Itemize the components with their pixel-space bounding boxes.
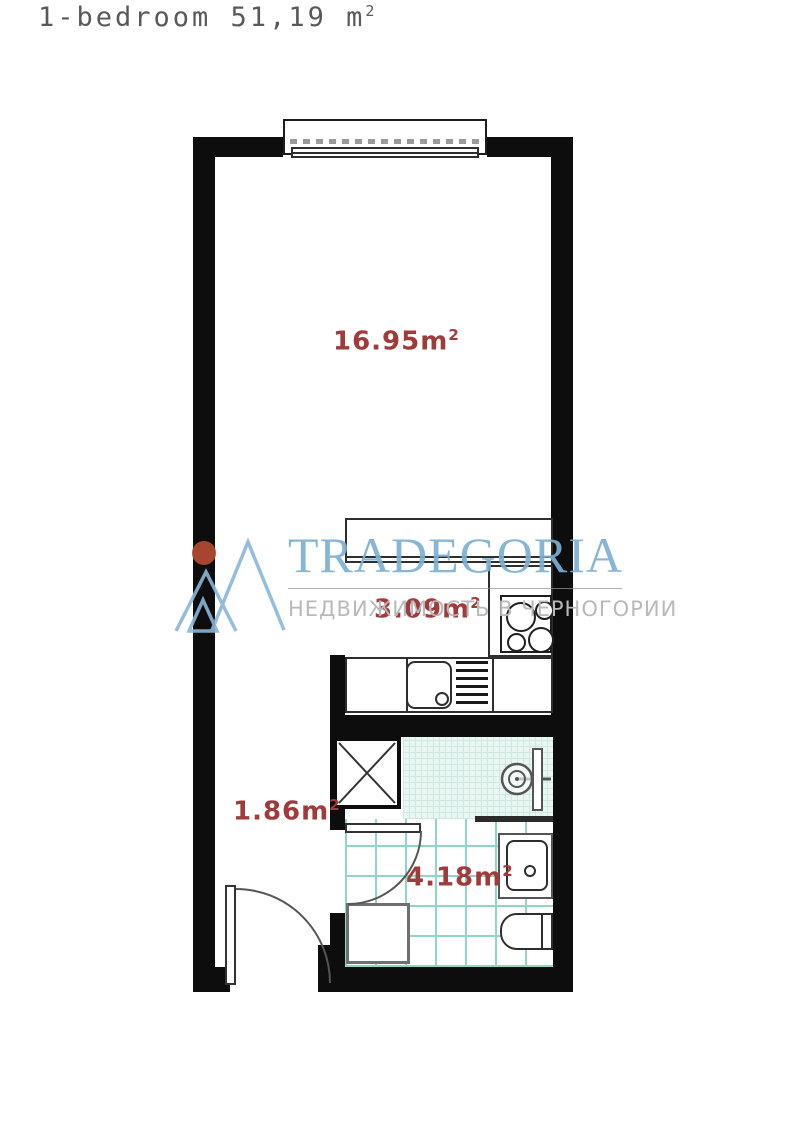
- page-title-text: 1-bedroom 51,19 m: [38, 2, 365, 33]
- brand-tagline: НЕДВИЖИМОСТЬ В ЧЕРНОГОРИИ: [288, 597, 677, 621]
- room-area-sup: 2: [502, 862, 513, 880]
- brand-logo-icon: [170, 530, 295, 635]
- burner-icon: [528, 627, 554, 653]
- kitchen-sink-icon: [406, 661, 452, 709]
- wall-entry-jamb: [318, 945, 330, 970]
- bathroom-door-leaf: [345, 823, 421, 833]
- window-opening-dashes: [290, 139, 480, 144]
- sink-drain-icon: [435, 692, 449, 706]
- room-area-value: 1.86m: [233, 797, 329, 827]
- burner-icon: [507, 633, 526, 652]
- page-title: 1-bedroom 51,19 m2: [38, 2, 374, 33]
- logo-big-peak-icon: [212, 542, 284, 630]
- counter-divider: [492, 659, 494, 711]
- dishwasher-icon: [456, 661, 488, 707]
- washing-machine-icon: [346, 903, 410, 964]
- sink-drain-icon: [524, 865, 536, 877]
- shower-partition: [475, 816, 553, 822]
- brand-wordmark: TRADEGORIA: [288, 526, 623, 584]
- room-label-hallway: 1.86m2: [233, 796, 341, 827]
- entry-door-arc: [236, 889, 330, 983]
- room-area-value: 16.95m: [333, 327, 448, 357]
- wall-bottom: [318, 967, 573, 992]
- window-sill: [291, 147, 479, 158]
- toilet-icon: [500, 913, 553, 950]
- ventilation-shaft: [333, 737, 401, 809]
- room-area-sup: 2: [448, 326, 459, 344]
- wall-left: [193, 137, 215, 992]
- shower-area: [403, 737, 553, 819]
- wall-kitchen-bath-divider: [330, 715, 573, 737]
- room-area-sup: 2: [329, 796, 340, 814]
- entry-door-leaf: [225, 885, 236, 985]
- room-label-bathroom: 4.18m2: [406, 862, 514, 893]
- page-title-sup: 2: [365, 2, 374, 20]
- floorplan-page: 1-bedroom 51,19 m2: [0, 0, 798, 1140]
- room-label-living: 16.95m2: [333, 326, 460, 357]
- room-area-value: 4.18m: [406, 863, 502, 893]
- watermark-divider-line: [288, 588, 622, 589]
- wall-hall-kitchen: [330, 655, 345, 717]
- toilet-tank-line: [541, 915, 543, 948]
